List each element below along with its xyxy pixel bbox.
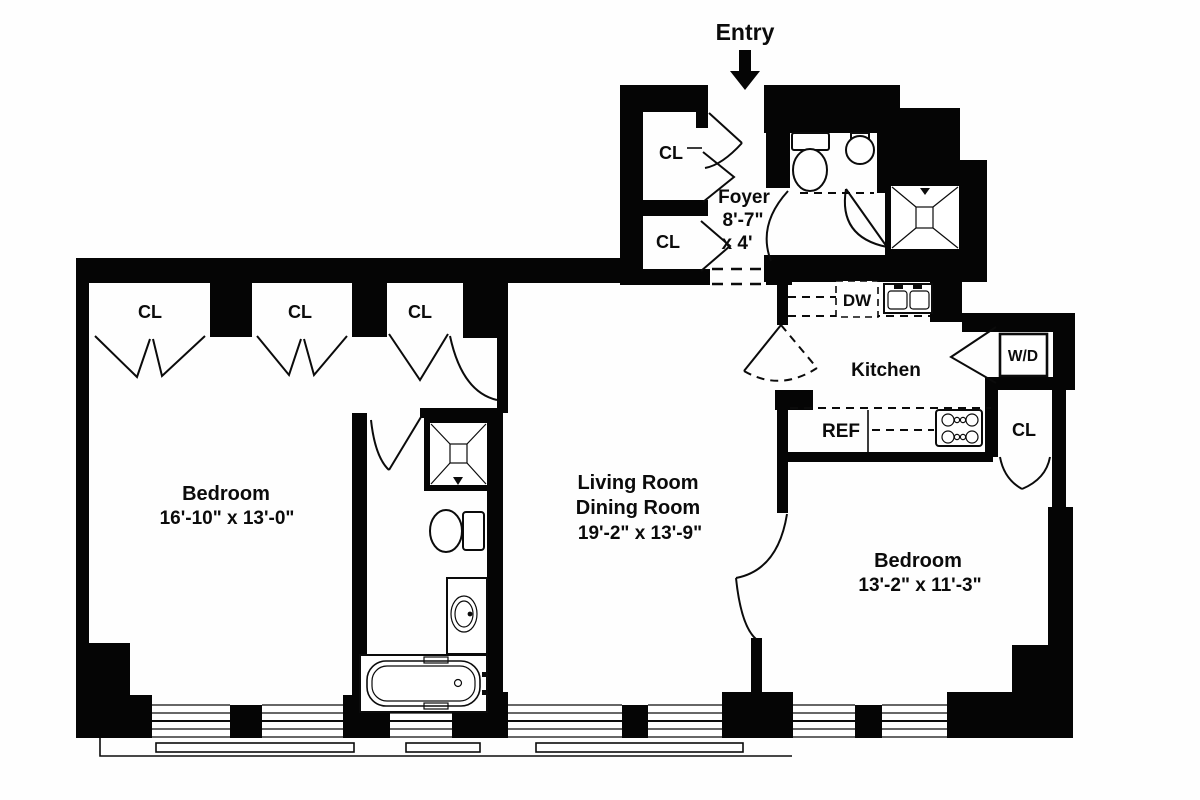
floor-plan-page: Entry Foyer 8'-7" x 4' CL CL CL CL CL CL… bbox=[0, 0, 1200, 800]
window bbox=[793, 705, 855, 737]
dining-room-label: Dining Room bbox=[576, 497, 700, 519]
wd-bifold-door bbox=[951, 327, 996, 383]
foyer-label: Foyer bbox=[718, 187, 770, 208]
entry-label: Entry bbox=[716, 19, 775, 45]
terrace-sill bbox=[100, 738, 792, 756]
shower-icon bbox=[427, 420, 490, 488]
vanity-sink-icon bbox=[447, 578, 487, 654]
foyer-dim2: x 4' bbox=[722, 233, 753, 254]
living-room-dim: 19'-2" x 13'-9" bbox=[578, 523, 702, 544]
stove-icon bbox=[936, 410, 982, 446]
kitchen-swing-door bbox=[744, 325, 817, 381]
windows bbox=[152, 705, 947, 737]
sink2-icon bbox=[846, 133, 874, 164]
bedroom2-closet-doors bbox=[1000, 457, 1050, 489]
closet-label-2: CL bbox=[288, 302, 312, 322]
closet-label-foyer-1: CL bbox=[659, 143, 683, 163]
fixtures bbox=[360, 133, 1047, 712]
bedroom2-doors bbox=[736, 514, 787, 639]
bedroom2-dim: 13'-2" x 11'-3" bbox=[858, 575, 981, 596]
washer-dryer-label: W/D bbox=[1008, 348, 1038, 365]
living-room-label: Living Room bbox=[577, 472, 698, 494]
bedroom2-label: Bedroom bbox=[874, 550, 962, 572]
closet3-bifold bbox=[389, 334, 497, 400]
window bbox=[648, 705, 722, 737]
toilet2-icon bbox=[792, 133, 829, 191]
bedroom1-label: Bedroom bbox=[182, 483, 270, 505]
entry-door bbox=[705, 113, 742, 168]
closet-label-bedroom2: CL bbox=[1012, 420, 1036, 440]
window bbox=[152, 705, 230, 737]
closet-label-3: CL bbox=[408, 302, 432, 322]
bathtub-icon bbox=[360, 655, 488, 712]
window bbox=[508, 705, 622, 737]
shower2-door bbox=[845, 189, 887, 247]
closet-label-foyer-2: CL bbox=[656, 232, 680, 252]
floor-plan: Entry Foyer 8'-7" x 4' CL CL CL CL CL CL… bbox=[0, 0, 1200, 800]
dishwasher-label: DW bbox=[843, 291, 872, 310]
closet1-bifold bbox=[95, 336, 205, 377]
closet2-bifold bbox=[257, 336, 347, 375]
bedroom1-dim: 16'-10" x 13'-0" bbox=[160, 508, 295, 529]
refrigerator-label: REF bbox=[822, 421, 860, 442]
kitchen-label: Kitchen bbox=[851, 360, 921, 381]
window bbox=[882, 705, 947, 737]
foyer-dim1: 8'-7" bbox=[723, 210, 764, 231]
bathroom1-door bbox=[371, 417, 421, 470]
closet-label-1: CL bbox=[138, 302, 162, 322]
window bbox=[262, 705, 343, 737]
entry-arrow-icon bbox=[730, 50, 760, 90]
toilet-icon bbox=[430, 510, 484, 552]
shower2-icon bbox=[888, 183, 962, 252]
kitchen-sink-icon bbox=[884, 284, 932, 313]
